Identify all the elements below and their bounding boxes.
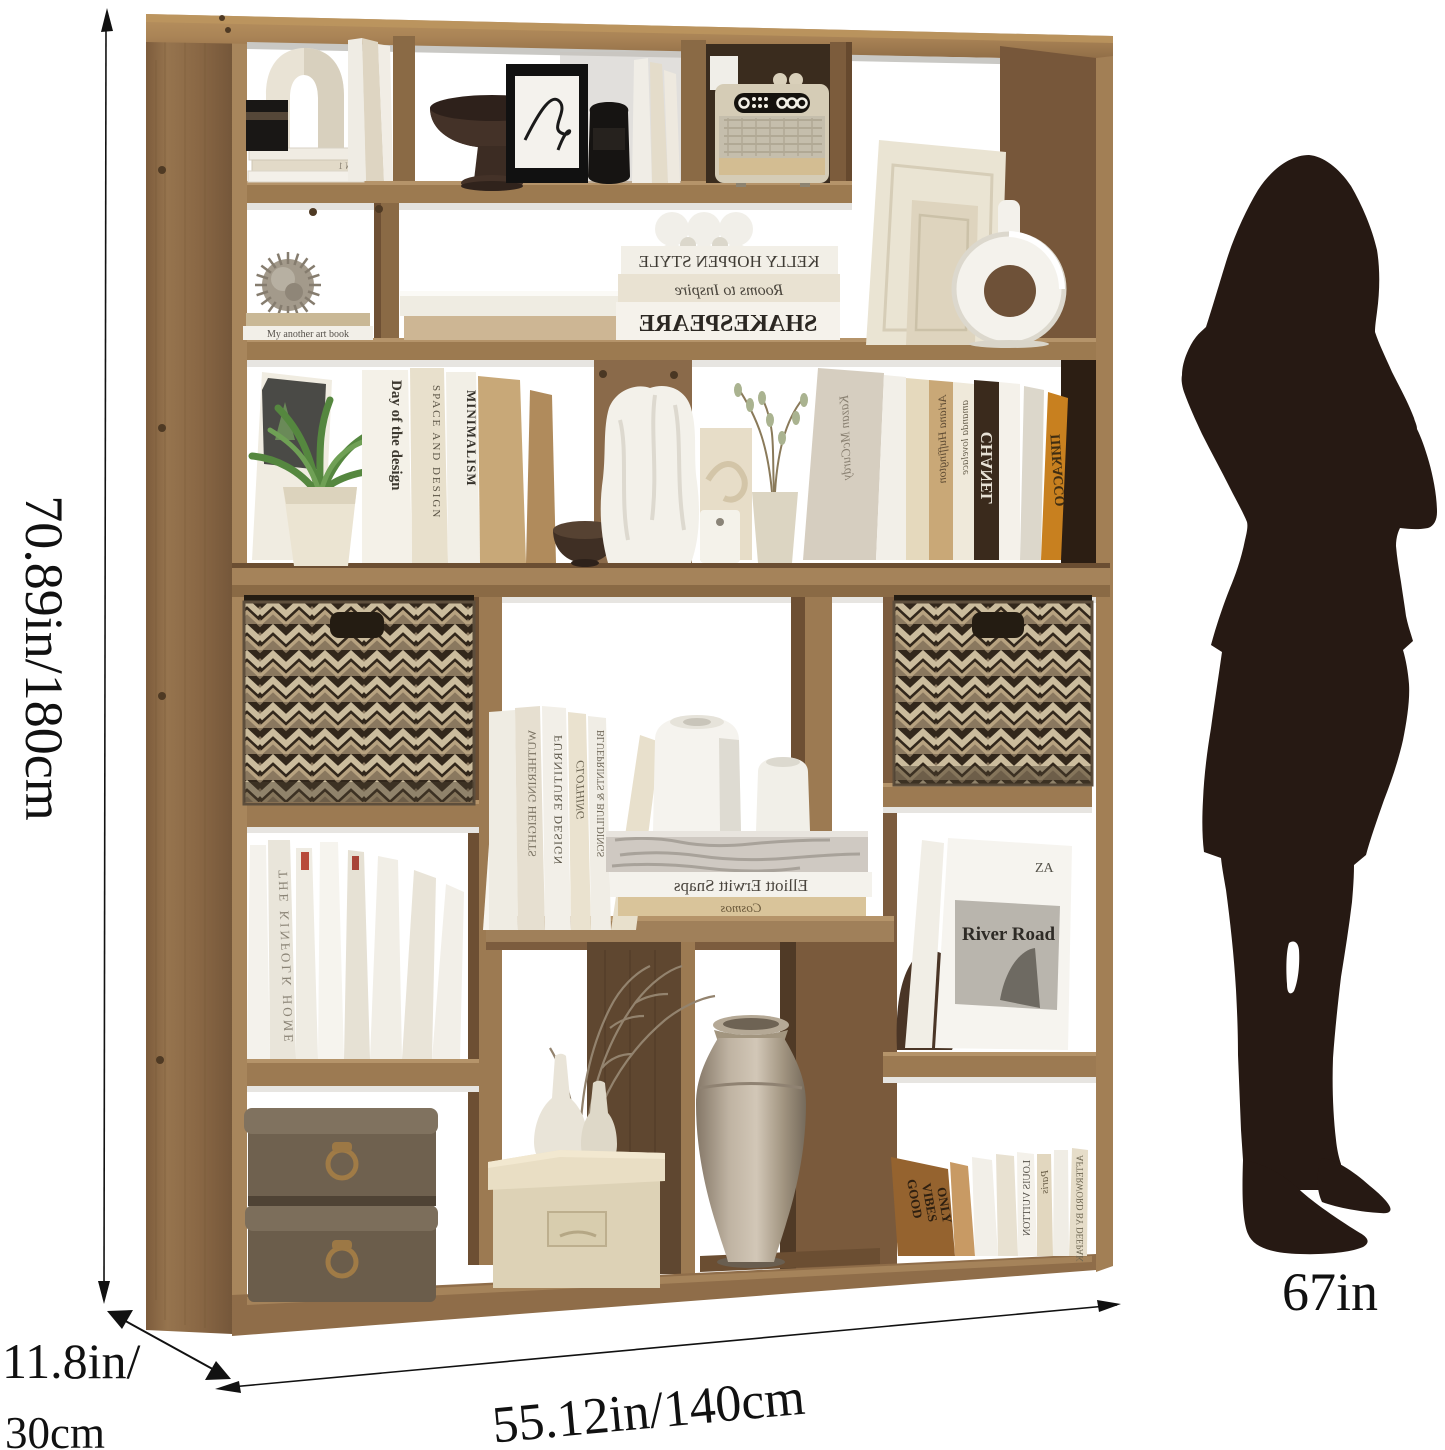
svg-text:CLOTHING: CLOTHING: [573, 760, 587, 820]
svg-text:LOUIS VUITTON: LOUIS VUITTON: [1022, 1160, 1033, 1236]
svg-text:BLUEPRINTS & BUILDINGS: BLUEPRINTS & BUILDINGS: [596, 730, 607, 857]
svg-text:WUTHERING HEIGHTS: WUTHERING HEIGHTS: [525, 730, 539, 857]
svg-text:30cm: 30cm: [5, 1408, 105, 1450]
svg-text:River Road: River Road: [962, 924, 1055, 945]
svg-text:ZA: ZA: [1035, 861, 1055, 876]
svg-text:FURNITURE DESIGN: FURNITURE DESIGN: [551, 735, 565, 865]
svg-text:11.8in/: 11.8in/: [2, 1333, 141, 1389]
svg-text:Paris: Paris: [1039, 1169, 1051, 1194]
svg-text:SHAKESPEARE: SHAKESPEARE: [639, 311, 818, 337]
svg-text:Elliott Erwitt Snaps: Elliott Erwitt Snaps: [674, 876, 808, 895]
svg-text:AFTERWORD BY DEEPAK: AFTERWORD BY DEEPAK: [1075, 1155, 1085, 1262]
svg-text:Ariana Huffington: Ariana Huffington: [935, 394, 949, 483]
svg-text:SPACE AND DESIGN: SPACE AND DESIGN: [430, 385, 442, 519]
svg-text:70.89in/180cm: 70.89in/180cm: [14, 495, 74, 820]
svg-text:My another art book: My another art book: [267, 329, 349, 340]
svg-text:CHANEL: CHANEL: [977, 432, 996, 505]
svg-text:67in: 67in: [1282, 1262, 1378, 1322]
svg-text:Day of the design: Day of the design: [388, 380, 404, 491]
svg-text:Cosmos: Cosmos: [720, 900, 761, 915]
svg-text:amanda lovelace: amanda lovelace: [959, 400, 971, 475]
svg-text:KELLY HOPPEN STYLE: KELLY HOPPEN STYLE: [639, 252, 820, 271]
svg-text:Kazan McCurdy: Kazan McCurdy: [836, 394, 854, 481]
svg-text:Rooms to Inspire: Rooms to Inspire: [675, 282, 785, 299]
svg-text:MINIMALISM: MINIMALISM: [464, 390, 479, 487]
